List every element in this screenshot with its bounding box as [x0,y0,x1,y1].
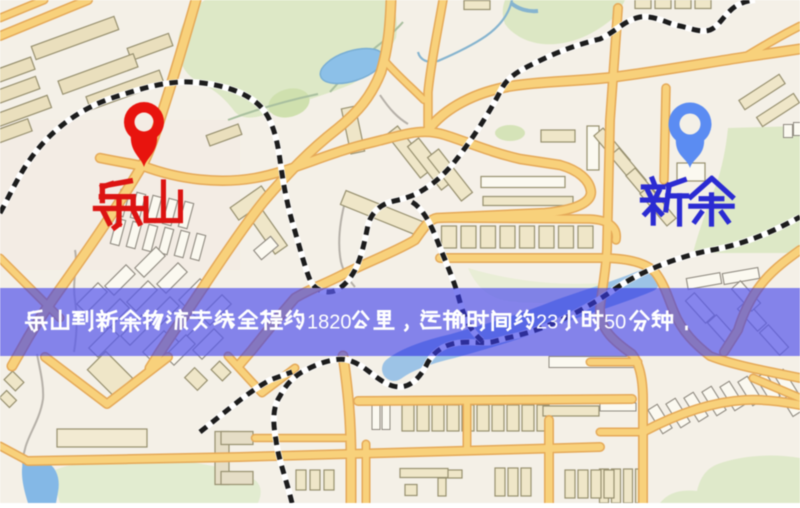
svg-text:23: 23 [536,312,558,334]
svg-text:50: 50 [604,312,626,334]
svg-text:1820: 1820 [307,312,352,334]
